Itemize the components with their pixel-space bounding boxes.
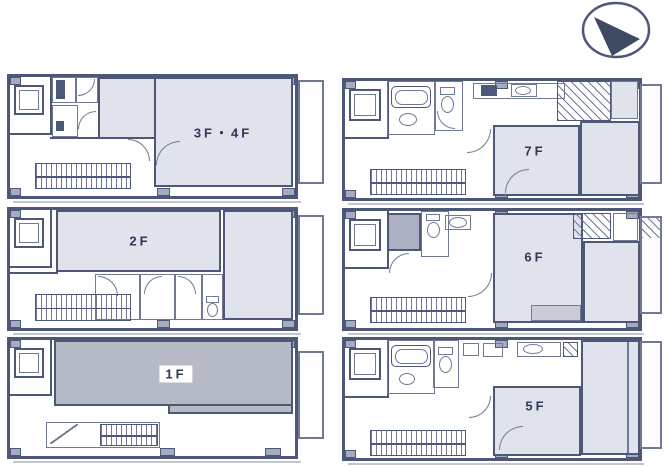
door-arc bbox=[389, 253, 409, 273]
unit-outline: 5F bbox=[342, 337, 642, 461]
room bbox=[613, 213, 638, 241]
scan-shadow bbox=[348, 333, 644, 335]
wall bbox=[50, 340, 52, 396]
room bbox=[581, 340, 640, 455]
elevator bbox=[14, 85, 44, 115]
scan-shadow bbox=[348, 463, 644, 465]
room bbox=[611, 81, 638, 119]
floor-plan-6f: 6F bbox=[342, 208, 664, 337]
toilet-tank bbox=[206, 296, 219, 303]
pillar bbox=[10, 340, 21, 348]
pillar bbox=[157, 188, 170, 196]
unit-outline: 7F bbox=[342, 78, 642, 201]
floor-label: 3F・4F bbox=[194, 123, 252, 142]
pillar bbox=[10, 188, 21, 196]
pillar bbox=[157, 320, 170, 328]
floor-label: 1F bbox=[159, 366, 192, 383]
pillar bbox=[282, 188, 295, 196]
unit-outline: 6F bbox=[342, 208, 642, 331]
elevator bbox=[14, 218, 44, 248]
door-arc bbox=[467, 129, 491, 153]
toilet bbox=[427, 222, 440, 238]
balcony bbox=[298, 80, 324, 184]
closet-wall bbox=[627, 342, 629, 453]
pillar bbox=[265, 448, 281, 456]
pillar bbox=[345, 450, 356, 458]
washbasin bbox=[399, 373, 415, 385]
toilet-tank bbox=[440, 87, 455, 95]
entry-door bbox=[50, 424, 78, 444]
elevator bbox=[349, 348, 381, 380]
balcony bbox=[298, 215, 324, 315]
stairs bbox=[100, 424, 158, 446]
wall bbox=[50, 137, 100, 139]
floor-plan-3f4f: 3F・4F bbox=[7, 74, 327, 205]
scan-shadow bbox=[13, 201, 301, 203]
upper-stairs bbox=[557, 81, 611, 121]
stove bbox=[481, 85, 497, 96]
scan-shadow bbox=[13, 333, 301, 335]
sink-basin bbox=[449, 217, 467, 228]
stairs bbox=[35, 163, 131, 189]
wall bbox=[345, 396, 389, 398]
wall bbox=[10, 394, 52, 396]
shower-room bbox=[387, 213, 421, 251]
floor-label: 7F bbox=[524, 144, 545, 159]
toilet bbox=[207, 303, 218, 317]
floor-plan-1f: 1F bbox=[7, 337, 327, 465]
balcony bbox=[640, 341, 662, 449]
wall bbox=[50, 210, 52, 268]
stairs bbox=[370, 169, 466, 195]
sink-basin bbox=[515, 86, 531, 95]
floorplan-sheet: { "sheet": {"type": "building-floor-plan… bbox=[0, 0, 665, 463]
laundry-space bbox=[483, 343, 503, 357]
stairs bbox=[35, 294, 131, 321]
wall bbox=[10, 133, 52, 135]
pillar bbox=[345, 320, 356, 328]
door-arc bbox=[469, 396, 491, 418]
upper-stairs bbox=[573, 213, 611, 239]
toilet bbox=[56, 121, 64, 131]
door-arc bbox=[468, 273, 492, 297]
door-arc bbox=[128, 139, 150, 161]
shaft bbox=[56, 80, 65, 99]
pillar bbox=[10, 448, 21, 456]
room bbox=[580, 121, 640, 196]
wall bbox=[345, 267, 389, 269]
pillar bbox=[345, 190, 356, 198]
pillar bbox=[282, 320, 295, 328]
duct-hatch bbox=[563, 342, 578, 357]
balcony bbox=[640, 84, 662, 184]
pillar bbox=[345, 340, 356, 348]
room bbox=[223, 210, 293, 320]
floor-plan-5f: 5F bbox=[342, 337, 664, 467]
pillar bbox=[160, 448, 175, 456]
floor-plan-2f: 2F bbox=[7, 207, 327, 337]
pillar bbox=[10, 210, 21, 218]
wall bbox=[10, 272, 58, 274]
unit-outline: 2F bbox=[7, 207, 298, 331]
main-room-step bbox=[168, 404, 293, 414]
floor-label: 2F bbox=[129, 234, 150, 249]
toilet bbox=[439, 356, 452, 373]
bathtub bbox=[391, 86, 431, 108]
door-arc bbox=[78, 111, 96, 129]
sink-basin bbox=[523, 344, 543, 354]
bathtub bbox=[391, 345, 431, 367]
unit-outline: 1F bbox=[7, 337, 298, 459]
wall bbox=[10, 266, 52, 268]
floor-label: 5F bbox=[525, 399, 546, 414]
pillar bbox=[10, 320, 21, 328]
pillar bbox=[10, 77, 21, 85]
washbasin bbox=[399, 113, 417, 126]
toilet-tank bbox=[426, 214, 440, 221]
scan-shadow bbox=[348, 203, 644, 205]
room bbox=[98, 77, 156, 139]
washstand bbox=[463, 343, 479, 356]
floor-label: 6F bbox=[524, 250, 545, 265]
floor-plan-7f: 7F bbox=[342, 78, 664, 207]
pillar bbox=[345, 211, 356, 219]
pillar bbox=[345, 81, 356, 89]
toilet-tank bbox=[438, 347, 453, 355]
floor-step bbox=[531, 305, 581, 321]
elevator bbox=[349, 219, 381, 251]
elevator bbox=[14, 348, 44, 378]
room bbox=[583, 241, 640, 323]
wall bbox=[345, 137, 389, 139]
stairs bbox=[370, 297, 466, 323]
north-arrow-icon bbox=[572, 0, 657, 62]
unit-outline: 3F・4F bbox=[7, 74, 298, 199]
balcony bbox=[298, 351, 324, 439]
stairs bbox=[370, 430, 466, 456]
elevator bbox=[349, 89, 381, 121]
balcony-hatch bbox=[642, 218, 660, 238]
